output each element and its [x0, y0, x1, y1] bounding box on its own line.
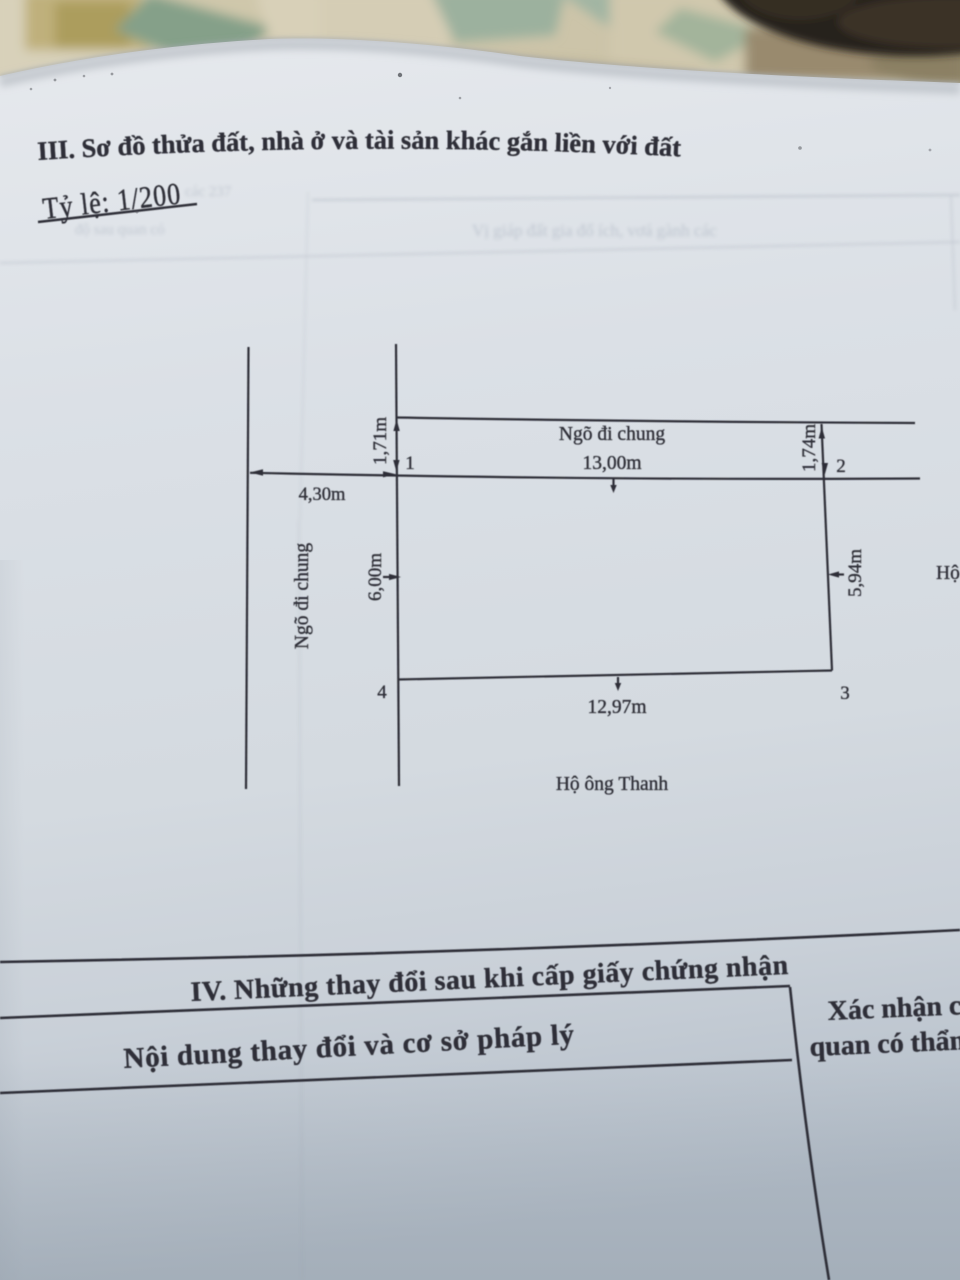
svg-text:1: 1 [405, 453, 415, 474]
svg-text:các 237: các 237 [185, 184, 232, 200]
svg-text:12,97m: 12,97m [587, 697, 646, 718]
svg-text:Vị giáp đất gia đổ ích, vơá gà: Vị giáp đất gia đổ ích, vơá gành các [472, 221, 717, 240]
svg-text:6,00m: 6,00m [365, 553, 386, 601]
svg-text:4,30m: 4,30m [299, 485, 346, 505]
svg-text:Hộ ô: Hộ ô [936, 563, 960, 584]
svg-text:3: 3 [840, 683, 850, 704]
svg-text:Hộ ông Thanh: Hộ ông Thanh [556, 774, 669, 795]
svg-text:Ngõ đi chung: Ngõ đi chung [559, 424, 665, 445]
svg-text:Ngõ đi chung: Ngõ đi chung [292, 543, 313, 649]
svg-text:5,94m: 5,94m [845, 549, 866, 597]
svg-text:độ sau quan có: độ sau quan có [75, 222, 165, 238]
svg-text:1,71m: 1,71m [370, 417, 391, 465]
svg-text:2: 2 [836, 456, 846, 477]
svg-text:13,00m: 13,00m [582, 453, 641, 474]
svg-text:1,74m: 1,74m [799, 424, 820, 472]
svg-text:4: 4 [377, 682, 387, 703]
